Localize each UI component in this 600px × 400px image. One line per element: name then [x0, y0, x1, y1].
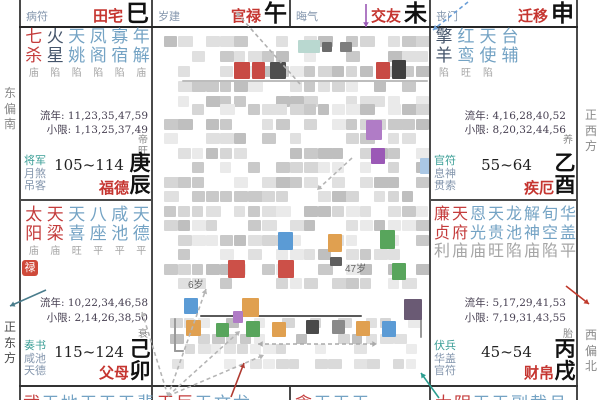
- palace-strip-wei[interactable]: 晦气 交友 未: [290, 0, 430, 27]
- mosaic-tile: [402, 81, 416, 92]
- star-column: 恩光庙: [469, 206, 487, 257]
- center-overlay-rect: [174, 350, 184, 352]
- mosaic-tile: [263, 359, 275, 369]
- mosaic-tile: [318, 162, 330, 173]
- mosaic-tile: [248, 220, 261, 231]
- mosaic-tile: [290, 162, 303, 173]
- mosaic-tile: [416, 206, 428, 217]
- mosaic-tile: [315, 344, 326, 354]
- mosaic-tile: [402, 104, 417, 115]
- colored-blur-block: [270, 62, 286, 79]
- strip-palace-name: 迁移: [518, 5, 548, 26]
- star-column: 七杀庙: [23, 28, 45, 79]
- mosaic-tile: [248, 162, 260, 173]
- mosaic-tile: [192, 264, 203, 275]
- mosaic-tile: [234, 177, 248, 188]
- mosaic-tile: [360, 36, 375, 47]
- mosaic-tile: [276, 36, 288, 47]
- colored-blur-block: [392, 263, 406, 280]
- mosaic-tile: [164, 220, 178, 231]
- mosaic-tile: [224, 359, 236, 369]
- mosaic-tile: [178, 249, 190, 260]
- sha-god: 官符: [434, 365, 456, 378]
- mosaic-tile: [406, 344, 417, 354]
- decade-palace-name: 父母: [99, 362, 129, 383]
- mosaic-tile: [360, 66, 373, 77]
- mosaic-tile: [304, 104, 316, 115]
- mosaic-tile: [360, 162, 371, 173]
- mosaic-tile: [234, 81, 248, 92]
- mosaic-tile: [220, 191, 232, 202]
- mosaic-tile: [276, 177, 291, 188]
- palace-strip-si[interactable]: 病符 田宅 巳: [20, 0, 152, 27]
- mosaic-tile: [262, 220, 277, 231]
- colored-blur-block: [298, 40, 320, 53]
- colored-blur-block: [242, 298, 259, 317]
- sha-god: 月煞: [24, 168, 46, 181]
- decade-range: 45~54: [460, 343, 553, 361]
- mosaic-tile: [332, 81, 345, 92]
- mosaic-tile: [220, 235, 233, 246]
- colored-blur-block: [392, 60, 406, 79]
- mosaic-tile: [234, 148, 247, 159]
- sha-god: 吊客: [24, 180, 46, 193]
- mosaic-tile: [276, 191, 288, 202]
- cutoff-star-char: 天: [156, 389, 175, 400]
- mosaic-tile: [388, 148, 400, 159]
- mosaic-tile: [178, 206, 190, 217]
- mosaic-tile: [388, 104, 401, 115]
- mosaic-tile: [332, 148, 343, 159]
- mosaic-tile: [332, 191, 347, 202]
- mosaic-tile: [211, 344, 221, 354]
- mosaic-tile: [262, 191, 275, 202]
- mosaic-tile: [206, 96, 221, 107]
- strip-palace-name: 官禄: [231, 5, 261, 26]
- colored-blur-block: [228, 260, 245, 278]
- mosaic-tile: [220, 119, 232, 130]
- mosaic-tile: [416, 264, 430, 275]
- mosaic-tile: [220, 36, 235, 47]
- mosaic-tile: [192, 51, 205, 62]
- palace-strip-wu[interactable]: 岁建 官禄 午: [152, 0, 290, 27]
- center-overlay-rect: [200, 315, 362, 317]
- mosaic-tile: [178, 66, 190, 77]
- mosaic-tile: [206, 191, 219, 202]
- mosaic-tile: [304, 119, 317, 130]
- mosaic-tile: [192, 162, 204, 173]
- mosaic-tile: [192, 220, 206, 231]
- colored-blur-block: [306, 320, 319, 334]
- mosaic-tile: [172, 359, 184, 369]
- star-column: 天姚陷: [66, 28, 88, 79]
- mosaic-tile: [332, 278, 347, 289]
- star-column: 寡宿陷: [109, 28, 131, 79]
- colored-blur-block: [404, 299, 422, 320]
- mosaic-tile: [346, 133, 359, 144]
- mosaic-tile: [346, 278, 359, 289]
- mosaic-tile: [248, 104, 260, 115]
- mosaic-tile: [402, 119, 415, 130]
- mosaic-tile: [234, 96, 246, 107]
- cutoff-star-char: 天: [313, 389, 332, 400]
- mosaic-tile: [388, 249, 400, 260]
- mosaic-tile: [276, 344, 286, 354]
- star-column: 廉贞利: [433, 206, 451, 257]
- mosaic-tile: [262, 235, 276, 246]
- xiaoxian-ages: 小限: 1,13,25,37,49: [47, 122, 148, 137]
- sha-god: 奏书: [24, 340, 46, 353]
- mosaic-tile: [185, 344, 195, 354]
- colored-blur-block: [356, 321, 370, 336]
- mosaic-tile: [262, 206, 277, 217]
- hua-lu-badge: 禄: [22, 260, 38, 276]
- colored-blur-block: [322, 42, 332, 52]
- decade-palace-name: 财帛: [524, 362, 554, 383]
- mosaic-tile: [416, 235, 429, 246]
- mosaic-tile: [406, 359, 416, 369]
- strip-sha-label: 病符: [26, 8, 48, 24]
- mosaic-tile: [192, 191, 205, 202]
- mosaic-tile: [346, 66, 357, 77]
- mosaic-tile: [332, 206, 344, 217]
- sha-god: 贯索: [434, 180, 456, 193]
- direction-label-east: 正东方: [3, 320, 17, 367]
- colored-blur-block: [328, 234, 342, 252]
- mosaic-tile: [206, 148, 218, 159]
- mosaic-tile: [315, 359, 328, 369]
- mosaic-tile: [290, 66, 304, 77]
- mosaic-tile: [206, 36, 220, 47]
- mosaic-tile: [374, 177, 389, 188]
- star-column: 解神庙: [523, 206, 541, 257]
- mosaic-tile: [388, 162, 399, 173]
- sha-god: 华盖: [434, 353, 456, 366]
- mosaic-tile: [164, 177, 179, 188]
- mosaic-tile: [164, 191, 179, 202]
- star-column: 八座平: [88, 206, 110, 257]
- mosaic-tile: [192, 104, 204, 115]
- mosaic-tile: [354, 344, 367, 354]
- mosaic-tile: [192, 235, 206, 246]
- mosaic-tile: [178, 220, 190, 231]
- cutoff-star-char: 太: [434, 389, 453, 400]
- decade-range: 55~64: [460, 156, 553, 174]
- mosaic-tile: [248, 206, 260, 217]
- mosaic-tile: [237, 344, 248, 354]
- sha-god-list: 奏书咸池天德: [24, 340, 46, 378]
- mosaic-tile: [346, 220, 358, 231]
- mosaic-tile: [402, 206, 416, 217]
- mosaic-tile: [206, 220, 217, 231]
- colored-blur-block: [246, 321, 260, 337]
- mosaic-tile: [220, 148, 232, 159]
- xiaoxian-ages: 小限: 2,14,26,38,50: [47, 310, 148, 325]
- mosaic-tile: [290, 249, 304, 260]
- mosaic-tile: [304, 220, 315, 231]
- mosaic-tile: [289, 359, 299, 369]
- mosaic-tile: [346, 81, 358, 92]
- mosaic-tile: [192, 177, 204, 188]
- mosaic-tile: [388, 133, 399, 144]
- age-fragment: 6岁: [188, 276, 204, 291]
- direction-label-west: 正西方: [584, 108, 598, 155]
- mosaic-tile: [164, 133, 178, 144]
- liunian-ages: 流年: 5,17,29,41,53: [465, 295, 566, 310]
- strip-branch-char: 未: [404, 0, 427, 27]
- mosaic-tile: [234, 235, 246, 246]
- sha-god-list: 将军月煞吊客: [24, 155, 46, 193]
- star-column: 擎羊陷: [433, 28, 455, 79]
- star-column: 天使陷: [477, 28, 499, 79]
- palace-sliver-hai[interactable]: 太阴天天副截月: [434, 389, 567, 400]
- mosaic-tile: [248, 191, 263, 202]
- cutoff-star-char: 武: [22, 389, 41, 400]
- mosaic-tile: [290, 220, 305, 231]
- star-column: 凤阁陷: [88, 28, 110, 79]
- sha-god: 天德: [24, 365, 46, 378]
- mosaic-tile: [346, 235, 357, 246]
- mosaic-tile: [262, 133, 276, 144]
- colored-blur-block: [371, 148, 385, 164]
- mosaic-tile: [250, 344, 261, 354]
- colored-blur-block: [340, 42, 352, 52]
- mosaic-tile: [178, 177, 191, 188]
- colored-blur-block: [330, 257, 342, 266]
- mosaic-tile: [346, 104, 361, 115]
- mosaic-tile: [234, 51, 245, 62]
- mosaic-tile: [220, 249, 234, 260]
- colored-blur-block: [380, 230, 395, 249]
- star-column: 旬空陷: [541, 206, 559, 257]
- mosaic-tile: [304, 177, 318, 188]
- mosaic-tile: [234, 36, 248, 47]
- mosaic-tile: [220, 278, 232, 289]
- sha-god-list: 伏兵华盖官符: [434, 340, 456, 378]
- star-column: 天贵旺: [487, 206, 505, 257]
- mosaic-tile: [304, 81, 315, 92]
- star-column: 火星陷: [45, 28, 67, 79]
- mosaic-tile: [276, 249, 288, 260]
- stem-branch: 乙酉: [554, 153, 576, 197]
- mosaic-tile: [388, 191, 399, 202]
- cutoff-star-char: 贪: [294, 389, 313, 400]
- palace-cell-xu[interactable]: 廉贞利天府庙恩光庙天贵旺龙池陷解神庙旬空陷华盖平 流年: 5,17,29,41,…: [430, 200, 577, 386]
- mosaic-tile: [276, 206, 291, 217]
- mosaic-tile: [262, 177, 277, 188]
- strip-palace-name: 交友: [371, 5, 401, 26]
- mosaic-tile: [290, 81, 302, 92]
- mosaic-tile: [374, 96, 385, 107]
- cutoff-star-char: 天: [41, 389, 60, 400]
- decade-range: 115~124: [50, 343, 128, 361]
- mosaic-tile: [304, 249, 315, 260]
- decade-palace-name: 疾厄: [524, 177, 554, 198]
- cutoff-star-char: 副: [510, 389, 529, 400]
- cutoff-star-char: 文: [213, 389, 232, 400]
- mosaic-tile: [304, 278, 318, 289]
- palace-cell-mao[interactable]: 太阳庙天梁庙天喜旺八座平咸池平天德平 禄 流年: 10,22,34,46,58 …: [20, 200, 152, 386]
- liunian-ages: 流年: 4,16,28,40,52: [465, 108, 566, 123]
- star-column: 年解庙: [131, 28, 153, 79]
- star-column: 太阳庙: [23, 206, 45, 257]
- star-column: 红鸾旺: [455, 28, 477, 79]
- mosaic-tile: [290, 104, 305, 115]
- mosaic-tile: [164, 119, 179, 130]
- mosaic-tile: [192, 81, 206, 92]
- mosaic-tile: [393, 359, 404, 369]
- cutoff-star-char: 月: [548, 389, 567, 400]
- strip-sha-label: 晦气: [296, 8, 318, 24]
- mosaic-tile: [178, 264, 191, 275]
- mosaic-tile: [220, 162, 231, 173]
- palace-cell-chen[interactable]: 七杀庙火星陷天姚陷凤阁陷寡宿陷年解庙 流年: 11,23,35,47,59 小限…: [20, 27, 152, 200]
- sha-god-list: 官符息神贯索: [434, 155, 456, 193]
- mosaic-tile: [402, 191, 413, 202]
- mosaic-tile: [402, 133, 416, 144]
- palace-strip-shen[interactable]: 丧门 迁移 申: [430, 0, 577, 27]
- mosaic-tile: [206, 206, 221, 217]
- mosaic-tile: [328, 359, 342, 369]
- mosaic-tile: [276, 119, 290, 130]
- mosaic-tile: [263, 344, 277, 354]
- mosaic-tile: [388, 206, 401, 217]
- mosaic-tile: [367, 359, 380, 369]
- mosaic-tile: [290, 148, 302, 159]
- mosaic-tile: [234, 133, 246, 144]
- liunian-ages: 流年: 10,22,34,46,58: [40, 295, 148, 310]
- mosaic-tile: [178, 148, 191, 159]
- sha-god: 息神: [434, 168, 456, 181]
- cutoff-star-char: 天: [332, 389, 351, 400]
- strip-sha-label: 丧门: [436, 8, 458, 24]
- mosaic-tile: [198, 344, 211, 354]
- mosaic-tile: [332, 104, 345, 115]
- mosaic-tile: [220, 133, 234, 144]
- mosaic-tile: [192, 206, 203, 217]
- star-column: 天德平: [131, 206, 153, 257]
- cutoff-star-char: 地: [60, 389, 79, 400]
- xiaoxian-ages: 小限: 7,19,31,43,55: [465, 310, 566, 325]
- mosaic-tile: [296, 334, 307, 344]
- colored-blur-block: [278, 260, 294, 278]
- star-list: 廉贞利天府庙恩光庙天贵旺龙池陷解神庙旬空陷华盖平: [433, 206, 577, 257]
- mosaic-tile: [360, 206, 371, 217]
- cutoff-star-char: 龙: [232, 389, 251, 400]
- sha-god: 咸池: [24, 353, 46, 366]
- mosaic-tile: [220, 51, 234, 62]
- mosaic-tile: [276, 51, 289, 62]
- palace-sliver-yin[interactable]: 武天地天天天蜚: [22, 389, 155, 400]
- palace-sliver-chou[interactable]: 天巨天文龙: [156, 389, 251, 400]
- mosaic-tile: [164, 206, 176, 217]
- mosaic-tile: [262, 51, 274, 62]
- mosaic-tile: [206, 119, 219, 130]
- palace-sliver-zi[interactable]: 贪天天天: [294, 389, 370, 400]
- strip-palace-name: 田宅: [93, 5, 123, 26]
- mosaic-tile: [388, 119, 403, 130]
- mosaic-tile: [276, 162, 290, 173]
- decade-range: 105~114: [50, 156, 128, 174]
- colored-blur-block: [366, 120, 382, 140]
- stem-branch: 己卯: [129, 339, 151, 383]
- mosaic-tile: [332, 66, 344, 77]
- colored-blur-block: [252, 62, 265, 79]
- mosaic-tile: [276, 359, 289, 369]
- strip-branch-char: 巳: [126, 0, 149, 27]
- mosaic-tile: [318, 148, 333, 159]
- mosaic-tile: [290, 278, 302, 289]
- direction-label-east-south: 东偏南: [3, 86, 17, 133]
- mosaic-tile: [248, 81, 263, 92]
- star-list: 太阳庙天梁庙天喜旺八座平咸池平天德平: [23, 206, 152, 257]
- mosaic-tile: [374, 191, 385, 202]
- cutoff-star-char: 截: [529, 389, 548, 400]
- mosaic-tile: [304, 162, 319, 173]
- mosaic-tile: [374, 249, 388, 260]
- mosaic-tile: [248, 51, 263, 62]
- cutoff-star-char: 蜚: [136, 389, 155, 400]
- mosaic-tile: [332, 162, 344, 173]
- strip-sha-label: 岁建: [158, 8, 180, 24]
- grid-line: [289, 386, 291, 400]
- mosaic-tile: [178, 36, 193, 47]
- mosaic-tile: [178, 119, 193, 130]
- star-column: 咸池平: [109, 206, 131, 257]
- mosaic-tile: [318, 81, 330, 92]
- mosaic-tile: [178, 96, 189, 107]
- mosaic-tile: [338, 334, 350, 344]
- star-list: 七杀庙火星陷天姚陷凤阁陷寡宿陷年解庙: [23, 28, 152, 79]
- mosaic-tile: [276, 104, 287, 115]
- colored-blur-block: [233, 311, 243, 323]
- mosaic-tile: [332, 119, 346, 130]
- mosaic-tile: [360, 249, 371, 260]
- sha-god: 官符: [434, 155, 456, 168]
- strip-branch-char: 申: [551, 0, 574, 27]
- cutoff-star-char: 天: [98, 389, 117, 400]
- mosaic-tile: [164, 36, 177, 47]
- cutoff-star-char: 天: [194, 389, 213, 400]
- mosaic-tile: [206, 264, 220, 275]
- palace-cell-you[interactable]: 擎羊陷红鸾旺天使陷台辅 流年: 4,16,28,40,52 小限: 8,20,3…: [430, 27, 577, 200]
- direction-label-west-north: 西偏北: [584, 328, 598, 375]
- mosaic-tile: [318, 66, 333, 77]
- center-overlay-rect: [174, 318, 176, 352]
- colored-blur-block: [278, 232, 293, 250]
- cutoff-star-char: 天: [472, 389, 491, 400]
- colored-blur-block: [332, 320, 345, 334]
- mosaic-tile: [248, 235, 262, 246]
- mosaic-tile: [360, 177, 373, 188]
- mosaic-tile: [290, 177, 302, 188]
- strip-branch-char: 午: [264, 0, 287, 27]
- star-column: 天梁庙: [45, 206, 67, 257]
- xiaoxian-ages: 小限: 8,20,32,44,56: [465, 122, 566, 137]
- mosaic-tile: [318, 104, 329, 115]
- mosaic-tile: [416, 119, 429, 130]
- mosaic-tile: [178, 235, 192, 246]
- mosaic-tile: [206, 133, 220, 144]
- mosaic-tile: [388, 177, 399, 188]
- mosaic-tile: [318, 206, 331, 217]
- colored-blur-block: [216, 323, 229, 337]
- mosaic-tile: [346, 191, 359, 202]
- mosaic-tile: [304, 148, 318, 159]
- cutoff-star-char: 巨: [175, 389, 194, 400]
- colored-blur-block: [186, 320, 201, 336]
- mosaic-tile: [360, 278, 371, 289]
